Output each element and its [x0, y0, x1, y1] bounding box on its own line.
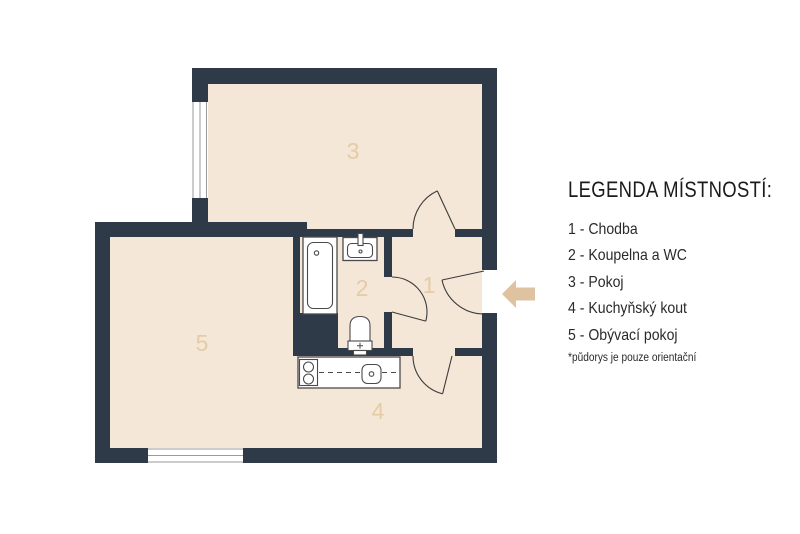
wall-segment [243, 448, 497, 463]
wash-basin [343, 234, 377, 261]
room-label-bathroom: 2 [356, 275, 369, 301]
toilet [348, 317, 372, 356]
wall-segment [293, 237, 300, 313]
wall-segment [192, 68, 497, 84]
wall-segment [293, 313, 338, 356]
wall-segment [455, 229, 483, 237]
legend-title: LEGENDA MÍSTNOSTÍ: [568, 177, 772, 203]
bathtub [303, 237, 337, 314]
legend-item-kitchenette: 4 - Kuchyňský kout [568, 296, 782, 322]
room-label-room: 3 [347, 138, 360, 164]
wall-segment [95, 222, 110, 463]
room-label-living-room: 5 [196, 330, 209, 356]
legend-item-hallway: 1 - Chodba [568, 217, 782, 243]
legend-items: 1 - Chodba 2 - Koupelna a WC 3 - Pokoj 4… [568, 217, 800, 349]
entrance-opening [482, 270, 497, 313]
legend-item-living-room: 5 - Obývací pokoj [568, 323, 782, 349]
room-label-hallway: 1 [423, 272, 436, 298]
stove [300, 360, 318, 386]
wall-segment [384, 237, 392, 277]
kitchen-counter [298, 357, 400, 388]
legend-footnote: *půdorys je pouze orientační [568, 352, 782, 364]
wall-segment [95, 222, 307, 237]
floorplan-page: 1 2 3 4 5 LEGENDA MÍSTNOSTÍ: 1 - Chodba … [0, 0, 800, 534]
legend-item-bathroom: 2 - Koupelna a WC [568, 243, 782, 269]
window-living-room [148, 448, 243, 463]
legend-item-room: 3 - Pokoj [568, 270, 782, 296]
wall-segment [192, 84, 208, 104]
wall-segment [455, 348, 483, 356]
room-legend: LEGENDA MÍSTNOSTÍ: 1 - Chodba 2 - Koupel… [568, 177, 800, 364]
entrance-arrow-icon [502, 280, 535, 308]
wall-segment [482, 84, 497, 270]
window-room-3 [192, 102, 208, 198]
wall-segment [482, 313, 497, 463]
room-label-kitchenette: 4 [372, 398, 385, 424]
kitchen-sink [362, 365, 381, 384]
room-3-floor [207, 83, 483, 237]
